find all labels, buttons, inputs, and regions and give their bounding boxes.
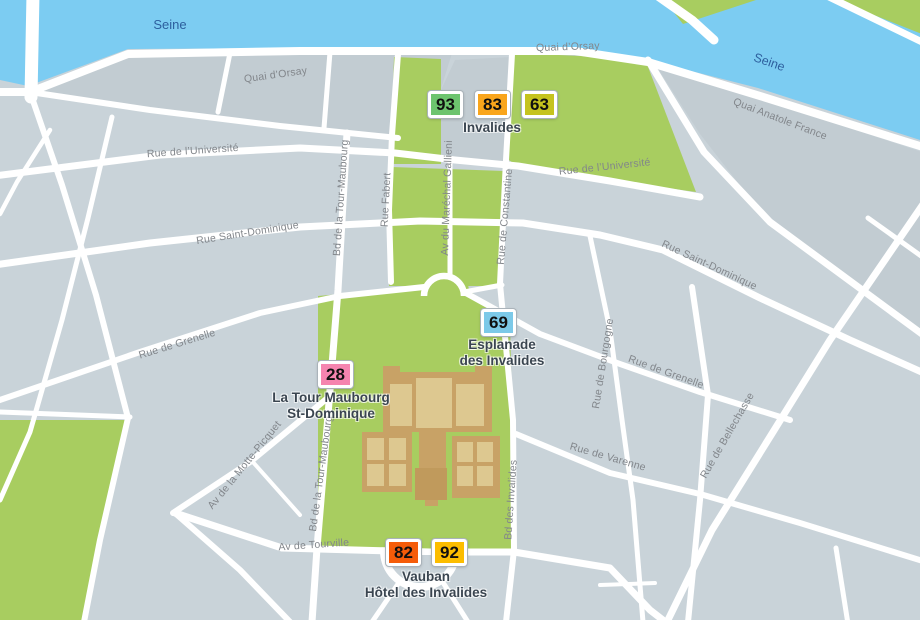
- bus-line-badge-93[interactable]: 93: [428, 91, 463, 118]
- stop-label-invalides: Invalides: [463, 120, 521, 136]
- bus-line-badge-28[interactable]: 28: [318, 361, 353, 388]
- bus-line-badge-63[interactable]: 63: [522, 91, 557, 118]
- road-bridge-west: [31, 0, 33, 97]
- stop-label-la-tour-maubourg: La Tour Maubourg St-Dominique: [272, 390, 390, 421]
- stop-label-vauban: Vauban Hôtel des Invalides: [365, 569, 487, 600]
- river-label-seine-west: Seine: [153, 17, 186, 32]
- bus-line-badge-82[interactable]: 82: [386, 539, 421, 566]
- street-label-quai-orsay-east: Quai d’Orsay: [536, 40, 601, 54]
- bus-line-badge-92[interactable]: 92: [432, 539, 467, 566]
- stop-label-esplanade-des-invalides: Esplanade des Invalides: [460, 337, 545, 368]
- invalides-dome: [415, 468, 447, 500]
- bus-line-badge-69[interactable]: 69: [481, 309, 516, 336]
- map-canvas[interactable]: Quai d’Orsay Quai d’Orsay Quai Anatole F…: [0, 0, 920, 620]
- road-bottom-connector: [600, 583, 655, 585]
- bus-line-badge-83[interactable]: 83: [475, 91, 510, 118]
